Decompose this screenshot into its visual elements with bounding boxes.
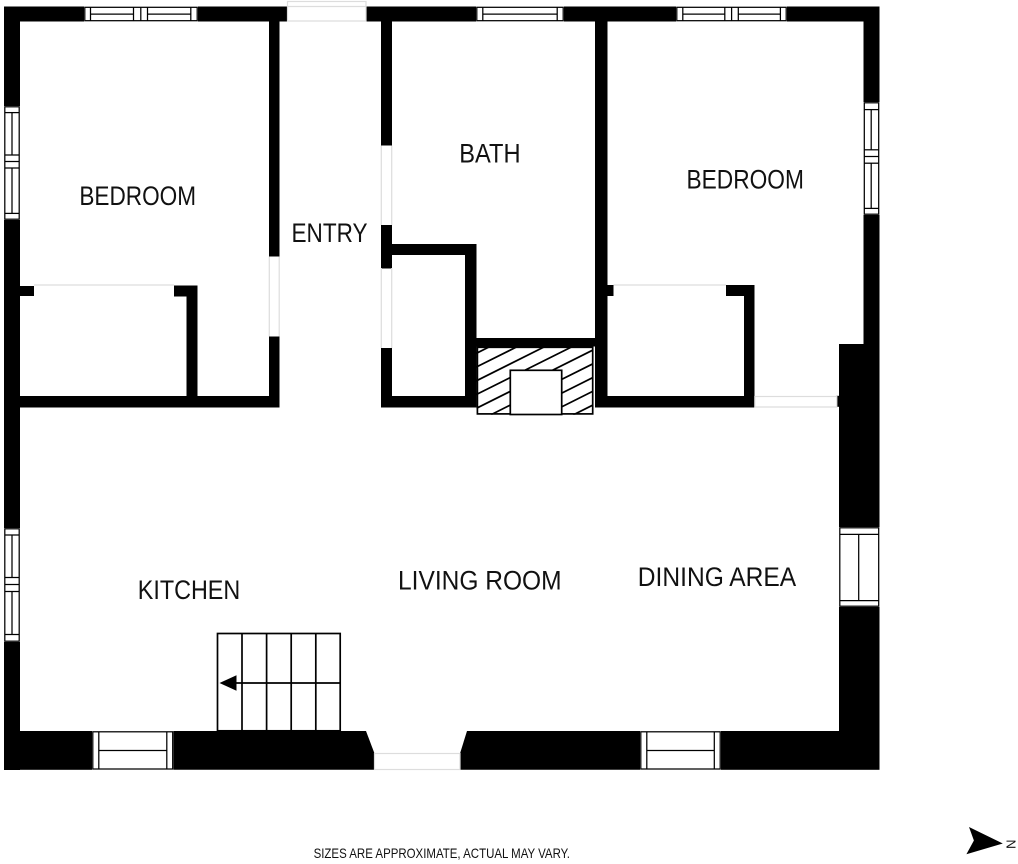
svg-text:SIZES ARE APPROXIMATE, ACTUAL: SIZES ARE APPROXIMATE, ACTUAL MAY VARY. <box>314 845 570 861</box>
svg-text:LIVING ROOM: LIVING ROOM <box>398 566 562 596</box>
svg-text:BEDROOM: BEDROOM <box>687 165 804 195</box>
svg-text:BEDROOM: BEDROOM <box>79 181 196 211</box>
svg-text:DINING AREA: DINING AREA <box>638 562 797 592</box>
svg-text:BATH: BATH <box>459 139 520 169</box>
svg-text:KITCHEN: KITCHEN <box>138 575 241 605</box>
svg-text:ENTRY: ENTRY <box>292 218 368 248</box>
svg-text:N: N <box>1003 840 1018 849</box>
